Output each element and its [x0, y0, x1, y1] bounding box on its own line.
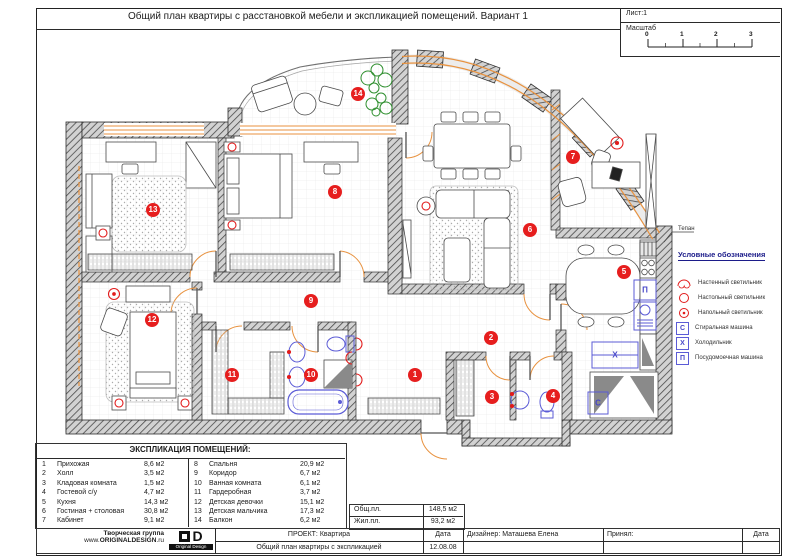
room-name: Коридор	[209, 469, 300, 478]
legend-item-dishwasher: П Посудомоечная машина	[676, 351, 786, 365]
title-block-row-line	[215, 541, 780, 542]
room-name: Спальня	[209, 460, 300, 469]
room-name: Холл	[57, 469, 144, 478]
room-name: Прихожая	[57, 460, 144, 469]
room-number: 11	[194, 488, 209, 497]
room-badge-13: 13	[146, 203, 160, 217]
room-area: 30,8 м2	[144, 507, 184, 516]
logo-d-icon: D	[192, 531, 202, 542]
explication-column-divider	[188, 458, 189, 527]
legend-label: Напольный светильник	[698, 310, 763, 316]
room-area: 9,1 м2	[144, 516, 184, 525]
washing-machine-icon: С	[676, 322, 689, 335]
room-number: 8	[194, 460, 209, 469]
room-number: 6	[42, 507, 57, 516]
room-number: 3	[42, 479, 57, 488]
explication-row: 9Коридор6,7 м2	[194, 469, 340, 478]
table-lamp-icon	[676, 292, 692, 304]
room-area: 1,5 м2	[144, 479, 184, 488]
room-number: 5	[42, 498, 57, 507]
room-number: 2	[42, 469, 57, 478]
info-box-divider	[620, 22, 780, 23]
room-area: 15,1 м2	[300, 498, 340, 507]
title-strip-line	[36, 29, 620, 30]
explication-row: 6Гостиная + столовая30,8 м2	[42, 507, 184, 516]
info-box-left-line	[620, 8, 621, 56]
explication-row: 5Кухня14,3 м2	[42, 498, 184, 507]
room-number: 1	[42, 460, 57, 469]
room-name: Кладовая комната	[57, 479, 144, 488]
logo-glyphs: D	[169, 529, 213, 544]
wall-lamp-icon	[676, 277, 692, 289]
tb-line-5	[742, 528, 743, 554]
explication-row: 1Прихожая8,6 м2	[42, 460, 184, 469]
total-area-label: Общ.пл.	[354, 504, 420, 516]
room-number: 14	[194, 516, 209, 525]
scale-label: Масштаб	[626, 25, 656, 32]
room-name: Балкон	[209, 516, 300, 525]
room-area: 17,3 м2	[300, 507, 340, 516]
explication-row: 14Балкон6,2 м2	[194, 516, 340, 525]
room-number: 10	[194, 479, 209, 488]
total-area-value: 148,5 м2	[424, 504, 462, 516]
room-number: 12	[194, 498, 209, 507]
studio-name: Творческая группа	[40, 530, 164, 537]
legend-label: Холодильник	[695, 340, 732, 346]
room-number: 9	[194, 469, 209, 478]
living-area-label: Жил.пл.	[354, 516, 420, 528]
room-number: 4	[42, 488, 57, 497]
url-domain: ORIGINALDESIGN	[100, 537, 157, 544]
explication-row: 10Ванная комната6,1 м2	[194, 479, 340, 488]
explication-row: 3Кладовая комната1,5 м2	[42, 479, 184, 488]
page-title: Общий план квартиры с расстановкой мебел…	[36, 11, 620, 22]
room-name: Гостиная + столовая	[57, 507, 144, 516]
room-area: 20,9 м2	[300, 460, 340, 469]
room-name: Гардеробная	[209, 488, 300, 497]
explication-row: 11Гардеробная3,7 м2	[194, 488, 340, 497]
room-area: 3,7 м2	[300, 488, 340, 497]
room-badge-10: 10	[304, 368, 318, 382]
scale-tick-0: 0	[645, 31, 649, 38]
room-name: Ванная комната	[209, 479, 300, 488]
logo-o-icon	[179, 531, 190, 542]
scale-tick-1: 1	[680, 31, 684, 38]
tb-line-2	[423, 528, 424, 554]
explication-row: 7Кабинет9,1 м2	[42, 516, 184, 525]
room-badge-2: 2	[484, 331, 498, 345]
room-name: Детская мальчика	[209, 507, 300, 516]
legend-item-fridge: Х Холодильник	[676, 336, 786, 350]
fridge-icon: Х	[676, 337, 689, 350]
explication-title: ЭКСПЛИКАЦИЯ ПОМЕЩЕНИЙ:	[35, 445, 345, 454]
legend-item-washing-machine: С Стиральная машина	[676, 321, 786, 335]
room-badge-6: 6	[523, 223, 537, 237]
room-badge-8: 8	[328, 185, 342, 199]
living-area-value: 93,2 м2	[424, 516, 462, 528]
room-area: 6,2 м2	[300, 516, 340, 525]
room-area: 8,6 м2	[144, 460, 184, 469]
room-name: Детская девочки	[209, 498, 300, 507]
tb-line-1	[215, 528, 216, 554]
fridge-label: Х	[612, 351, 617, 360]
legend-label: Стиральная машина	[695, 325, 753, 331]
scale-tick-2: 2	[714, 31, 718, 38]
room-badge-3: 3	[485, 390, 499, 404]
info-box-bottom-line	[620, 56, 780, 57]
room-area: 4,7 м2	[144, 488, 184, 497]
scale-tick-3: 3	[749, 31, 753, 38]
explication-right-column: 8Спальня20,9 м2 9Коридор6,7 м2 10Ванная …	[194, 460, 340, 526]
room-name: Кабинет	[57, 516, 144, 525]
room-badge-14: 14	[351, 87, 365, 101]
sheet-number-label: Лист:1	[626, 10, 647, 17]
logo-caption: Original Design	[169, 544, 213, 550]
explication-row: 13Детская мальчика17,3 м2	[194, 507, 340, 516]
room-name: Кухня	[57, 498, 144, 507]
room-badge-12: 12	[145, 313, 159, 327]
room-area: 6,7 м2	[300, 469, 340, 478]
legend-item-table-lamp: Настольный светильник	[676, 291, 786, 305]
washer-label: С	[595, 399, 601, 408]
room-number: 13	[194, 507, 209, 516]
dishwasher-icon: П	[676, 352, 689, 365]
legend-label: Настольный светильник	[698, 295, 765, 301]
explication-header-line	[35, 458, 345, 459]
studio-url: www.ORIGINALDESIGN.ru	[40, 537, 164, 544]
room-badge-11: 11	[225, 368, 239, 382]
room-area: 6,1 м2	[300, 479, 340, 488]
annotation-teplan: Тепан	[678, 226, 695, 232]
studio-info: Творческая группа www.ORIGINALDESIGN.ru	[40, 530, 164, 544]
dishwasher-label: П	[642, 286, 648, 295]
tb-line-4	[603, 528, 604, 554]
room-badge-9: 9	[304, 294, 318, 308]
explication-row: 4Гостевой с/у4,7 м2	[42, 488, 184, 497]
room-name: Гостевой с/у	[57, 488, 144, 497]
drawing-sheet: Общий план квартиры с расстановкой мебел…	[0, 0, 800, 559]
tb-line-3	[463, 528, 464, 554]
explication-row: 2Холл3,5 м2	[42, 469, 184, 478]
explication-row: 12Детская девочки15,1 м2	[194, 498, 340, 507]
legend-title: Условные обозначения	[678, 250, 765, 261]
room-area: 3,5 м2	[144, 469, 184, 478]
room-number: 7	[42, 516, 57, 525]
legend-label: Посудомоечная машина	[695, 355, 763, 361]
legend-item-floor-lamp: Напольный светильник	[676, 306, 786, 320]
explication-left-column: 1Прихожая8,6 м2 2Холл3,5 м2 3Кладовая ко…	[42, 460, 184, 526]
legend-label: Настенный светильник	[698, 280, 762, 286]
studio-logo: D Original Design	[169, 529, 213, 550]
legend-item-wall-lamp: Настенный светильник	[676, 276, 786, 290]
explication-row: 8Спальня20,9 м2	[194, 460, 340, 469]
url-tld: .ru	[156, 537, 164, 544]
room-area: 14,3 м2	[144, 498, 184, 507]
url-prefix: www.	[84, 537, 100, 544]
room-badge-4: 4	[546, 389, 560, 403]
room-badge-5: 5	[617, 265, 631, 279]
room-badge-1: 1	[408, 368, 422, 382]
room-badge-7: 7	[566, 150, 580, 164]
floor-lamp-icon	[676, 307, 692, 319]
